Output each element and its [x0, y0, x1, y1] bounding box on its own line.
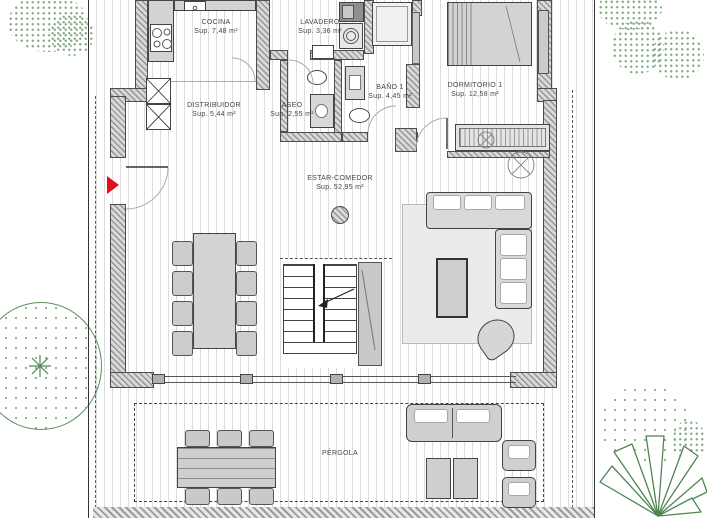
- stair-side-panel: [358, 262, 382, 366]
- sofa-cushion: [456, 409, 490, 423]
- sofa-cushion: [508, 482, 530, 496]
- wall: [280, 132, 342, 142]
- room-label-aseo: ASEO Sup. 2,55 m²: [247, 101, 337, 119]
- shrub-right-small-icon: [672, 420, 706, 462]
- laundry-sink-icon: [312, 45, 334, 59]
- sofa-cushion: [500, 234, 527, 256]
- wall: [510, 372, 557, 388]
- outdoor-chair-icon: [185, 430, 210, 447]
- chair-icon: [236, 271, 257, 296]
- outdoor-sofa-divider: [452, 408, 453, 438]
- wall: [395, 128, 417, 152]
- room-name: PÉRGOLA: [298, 449, 382, 458]
- glass-mullion: [152, 374, 165, 384]
- stair-stringer: [313, 264, 325, 342]
- sofa-cushion: [414, 409, 448, 423]
- coffee-table-icon: [436, 258, 468, 318]
- wall: [110, 96, 126, 158]
- column: [331, 206, 349, 224]
- shrub-top-right-3-icon: [652, 30, 704, 80]
- sofa-cushion: [508, 445, 530, 459]
- glass-mullion: [330, 374, 343, 384]
- room-label-dormitorio1: DORMITORIO 1 Sup. 12,58 m²: [428, 81, 522, 99]
- room-name: COCINA: [166, 18, 266, 27]
- room-area: Sup. 4,45 m²: [344, 92, 436, 101]
- glass-mullion: [240, 374, 253, 384]
- room-name: ESTAR-COMEDOR: [288, 174, 392, 183]
- chair-icon: [172, 271, 193, 296]
- plot-boundary-left: [88, 0, 89, 518]
- outdoor-chair-icon: [249, 430, 274, 447]
- wall: [280, 60, 288, 132]
- wall: [270, 50, 288, 60]
- outdoor-table-icon: [177, 447, 276, 488]
- room-name: DORMITORIO 1: [428, 81, 522, 90]
- entrance-arrow-icon: [107, 176, 119, 194]
- outdoor-chair-icon: [249, 488, 274, 505]
- wall: [256, 0, 270, 90]
- chair-icon: [172, 331, 193, 356]
- chair-icon: [236, 241, 257, 266]
- outdoor-side-table-icon: [453, 458, 478, 499]
- outdoor-side-table-icon: [426, 458, 451, 499]
- room-label-cocina: COCINA Sup. 7,48 m²: [166, 18, 266, 36]
- bed-headboard: [448, 3, 473, 65]
- bedroom-window: [538, 10, 549, 74]
- shower-inner-line: [376, 6, 408, 42]
- wall: [110, 204, 126, 388]
- room-area: Sup. 3,36 m²: [272, 27, 368, 36]
- sofa-cushion: [500, 282, 527, 304]
- room-label-lavadero: LAVADERO Sup. 3,36 m²: [272, 18, 368, 36]
- bottom-hatch-strip: [93, 507, 594, 518]
- chair-icon: [236, 301, 257, 326]
- room-name: BAÑO 1: [344, 83, 436, 92]
- sofa-cushion: [500, 258, 527, 280]
- chair-icon: [236, 331, 257, 356]
- wardrobe-hangers: [459, 128, 546, 147]
- outdoor-chair-icon: [217, 430, 242, 447]
- dining-table-icon: [193, 233, 236, 349]
- room-area: Sup. 7,48 m²: [166, 27, 266, 36]
- shower-glass: [412, 12, 420, 64]
- room-label-estar-comedor: ESTAR-COMEDOR Sup. 52,95 m²: [288, 174, 392, 192]
- toilet-icon: [349, 108, 370, 123]
- room-label-bano1: BAÑO 1 Sup. 4,45 m²: [344, 83, 436, 101]
- room-name: LAVADERO: [272, 18, 368, 27]
- plot-boundary-right: [594, 0, 595, 518]
- glass-mullion: [418, 374, 431, 384]
- toilet-icon: [307, 70, 327, 85]
- chair-icon: [172, 301, 193, 326]
- kitchen-sink-icon: [184, 1, 206, 11]
- sofa-cushion: [495, 195, 525, 210]
- room-area: Sup. 12,58 m²: [428, 90, 522, 99]
- setback-line-left: [95, 96, 96, 518]
- outdoor-chair-icon: [185, 488, 210, 505]
- outdoor-chair-icon: [217, 488, 242, 505]
- room-label-pergola: PÉRGOLA: [298, 449, 382, 458]
- dryer-vent: [342, 5, 354, 19]
- room-area: Sup. 52,95 m²: [288, 183, 392, 192]
- stair-void-dashed: [280, 258, 392, 259]
- room-area: Sup. 2,55 m²: [247, 110, 337, 119]
- wall: [447, 151, 550, 158]
- sofa-cushion: [464, 195, 492, 210]
- wall: [110, 372, 154, 388]
- setback-line-right: [572, 90, 573, 518]
- floor-plan: COCINA Sup. 7,48 m² LAVADERO Sup. 3,36 m…: [0, 0, 707, 518]
- sofa-cushion: [433, 195, 461, 210]
- wall: [342, 132, 368, 142]
- tree-large-icon: [0, 302, 102, 430]
- room-name: ASEO: [247, 101, 337, 110]
- chair-icon: [172, 241, 193, 266]
